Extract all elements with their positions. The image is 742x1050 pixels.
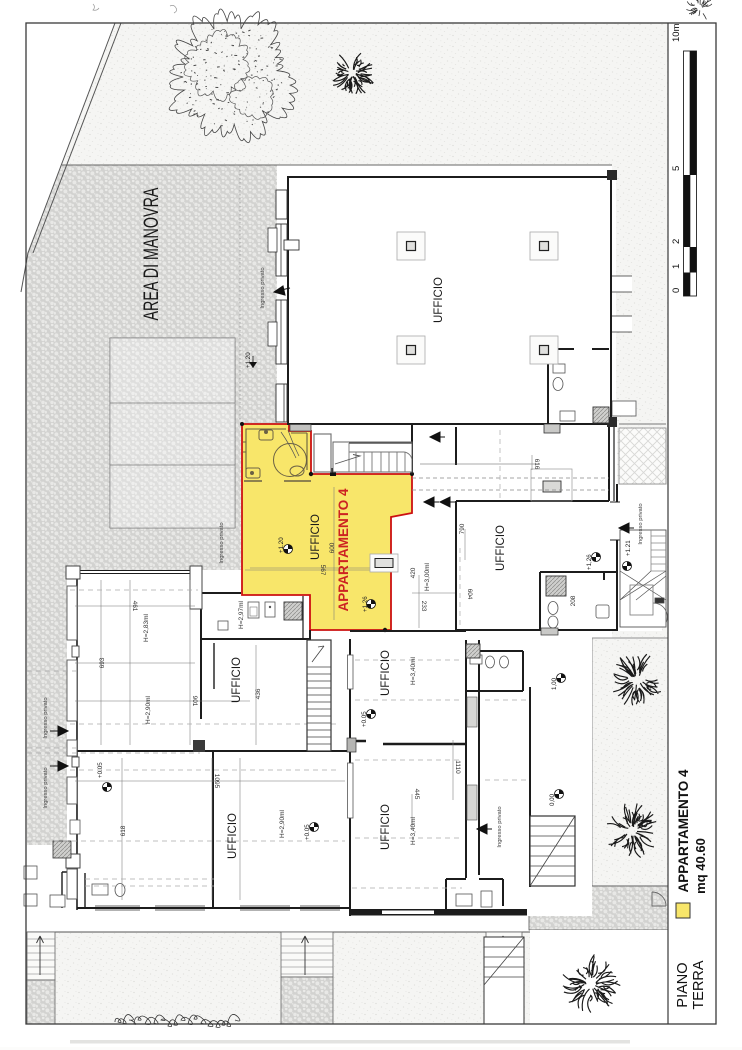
svg-text:600: 600 — [329, 542, 336, 553]
svg-text:790: 790 — [459, 523, 466, 534]
svg-text:UFFICIO: UFFICIO — [380, 650, 392, 696]
svg-text:901: 901 — [191, 696, 198, 707]
svg-text:0,00: 0,00 — [549, 793, 556, 806]
svg-text:+1.21: +1.21 — [625, 540, 632, 556]
svg-text:618: 618 — [120, 825, 127, 836]
svg-text:UFFICIO: UFFICIO — [380, 804, 392, 850]
svg-text:UFFICIO: UFFICIO — [227, 813, 239, 859]
svg-text:2: 2 — [671, 239, 682, 244]
svg-text:1095: 1095 — [213, 774, 220, 789]
svg-text:5: 5 — [671, 166, 682, 171]
svg-text:mq 40.60: mq 40.60 — [693, 838, 708, 894]
svg-text:Ingresso privato: Ingresso privato — [43, 767, 49, 808]
svg-text:1,00: 1,00 — [551, 677, 558, 690]
svg-text:APPARTAMENTO 4: APPARTAMENTO 4 — [336, 488, 351, 612]
svg-text:436: 436 — [255, 688, 262, 699]
svg-text:Ingresso privato: Ingresso privato — [43, 697, 49, 738]
svg-text:604: 604 — [466, 589, 473, 600]
svg-text:+0.05: +0.05 — [304, 824, 311, 840]
svg-text:616: 616 — [533, 459, 540, 470]
svg-text:461: 461 — [131, 601, 138, 612]
svg-text:APPARTAMENTO 4: APPARTAMENTO 4 — [676, 769, 691, 893]
svg-text:+0.05: +0.05 — [97, 762, 104, 778]
svg-text:1: 1 — [671, 264, 682, 269]
svg-text:TERRA: TERRA — [691, 960, 707, 1009]
svg-text:H=3,40ml: H=3,40ml — [410, 656, 417, 685]
svg-text:233: 233 — [420, 601, 427, 612]
svg-text:H=2,90ml: H=2,90ml — [279, 809, 286, 838]
svg-text:Ingresso privato: Ingresso privato — [497, 806, 503, 847]
svg-text:1110: 1110 — [454, 760, 461, 774]
svg-text:0: 0 — [671, 288, 682, 293]
svg-text:+1,26: +1,26 — [586, 554, 593, 570]
svg-text:UFFICIO: UFFICIO — [310, 514, 322, 560]
svg-text:+1.20: +1.20 — [278, 537, 285, 553]
svg-text:445: 445 — [413, 789, 420, 800]
svg-text:Ingresso privato: Ingresso privato — [638, 503, 644, 544]
svg-text:693: 693 — [99, 657, 106, 668]
svg-text:567: 567 — [319, 565, 326, 576]
svg-text:420: 420 — [410, 567, 417, 578]
svg-text:UFFICIO: UFFICIO — [495, 525, 507, 571]
svg-text:H=2,90ml: H=2,90ml — [145, 695, 152, 724]
svg-text:+1,26: +1,26 — [362, 596, 369, 612]
svg-text:H=3,00ml: H=3,00ml — [424, 562, 431, 591]
svg-text:208: 208 — [570, 595, 577, 606]
svg-text:+1.20: +1.20 — [245, 352, 252, 368]
svg-text:PIANO: PIANO — [675, 962, 691, 1007]
svg-text:Ingresso privato: Ingresso privato — [219, 522, 225, 563]
svg-text:AREA DI MANOVRA: AREA DI MANOVRA — [140, 188, 163, 321]
svg-text:H=3,40ml: H=3,40ml — [410, 816, 417, 845]
svg-text:H=2,83ml: H=2,83ml — [143, 613, 150, 642]
svg-text:Ingresso privato: Ingresso privato — [260, 267, 266, 308]
svg-text:UFFICIO: UFFICIO — [433, 277, 445, 323]
svg-text:H=2,97ml: H=2,97ml — [238, 600, 245, 629]
svg-text:+0.05: +0.05 — [361, 711, 368, 727]
svg-text:10m: 10m — [671, 23, 682, 42]
svg-text:UFFICIO: UFFICIO — [231, 657, 243, 703]
